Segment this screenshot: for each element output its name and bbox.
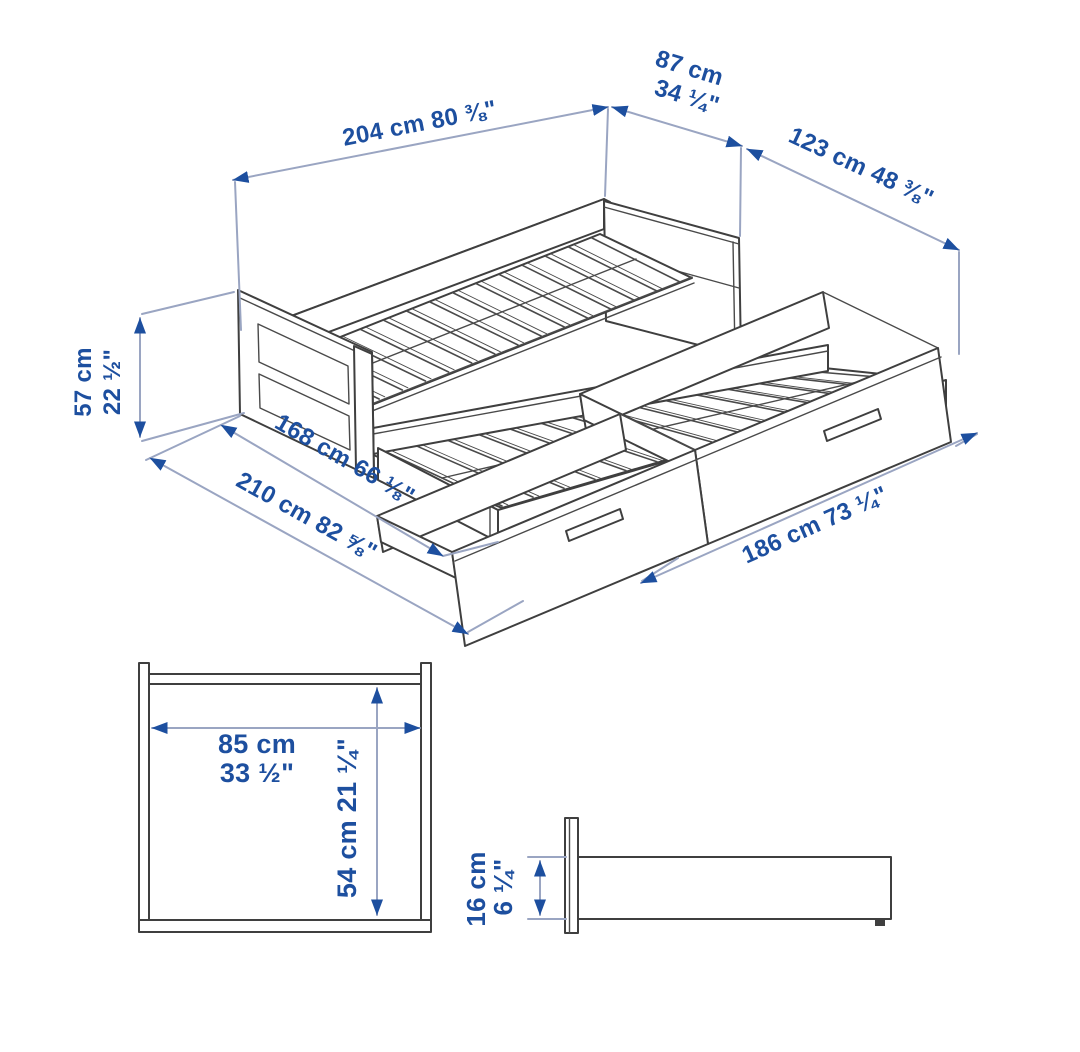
dim-end-panel-height-label: 54 cm 21 ¼" [332, 738, 362, 898]
dim-end-panel-width-line1: 85 cm [218, 729, 296, 759]
dim-bed-height-line1: 57 cm [70, 347, 97, 417]
dim-bed-height-line2: 22 ½" [99, 349, 126, 415]
dim-side-rail-height-line1: 16 cm [461, 851, 491, 926]
diagram-canvas: 204 cm 80 ⅜" 87 cm 34 ¼" 123 cm 48 ⅜" 57… [0, 0, 1080, 1052]
dim-side-rail-height-line2: 6 ¼" [488, 859, 518, 916]
daybed-dimension-diagram: 204 cm 80 ⅜" 87 cm 34 ¼" 123 cm 48 ⅜" 57… [0, 0, 1080, 1052]
dim-end-panel-width-line2: 33 ½" [220, 758, 294, 788]
panel-left-stile [139, 663, 149, 920]
panel-right-stile [421, 663, 431, 920]
headboard-profile [565, 818, 578, 933]
panel-top-rail [149, 674, 421, 684]
side-rail-profile [578, 857, 891, 919]
panel-bottom-rail [139, 920, 431, 932]
rail-foot [875, 919, 885, 926]
